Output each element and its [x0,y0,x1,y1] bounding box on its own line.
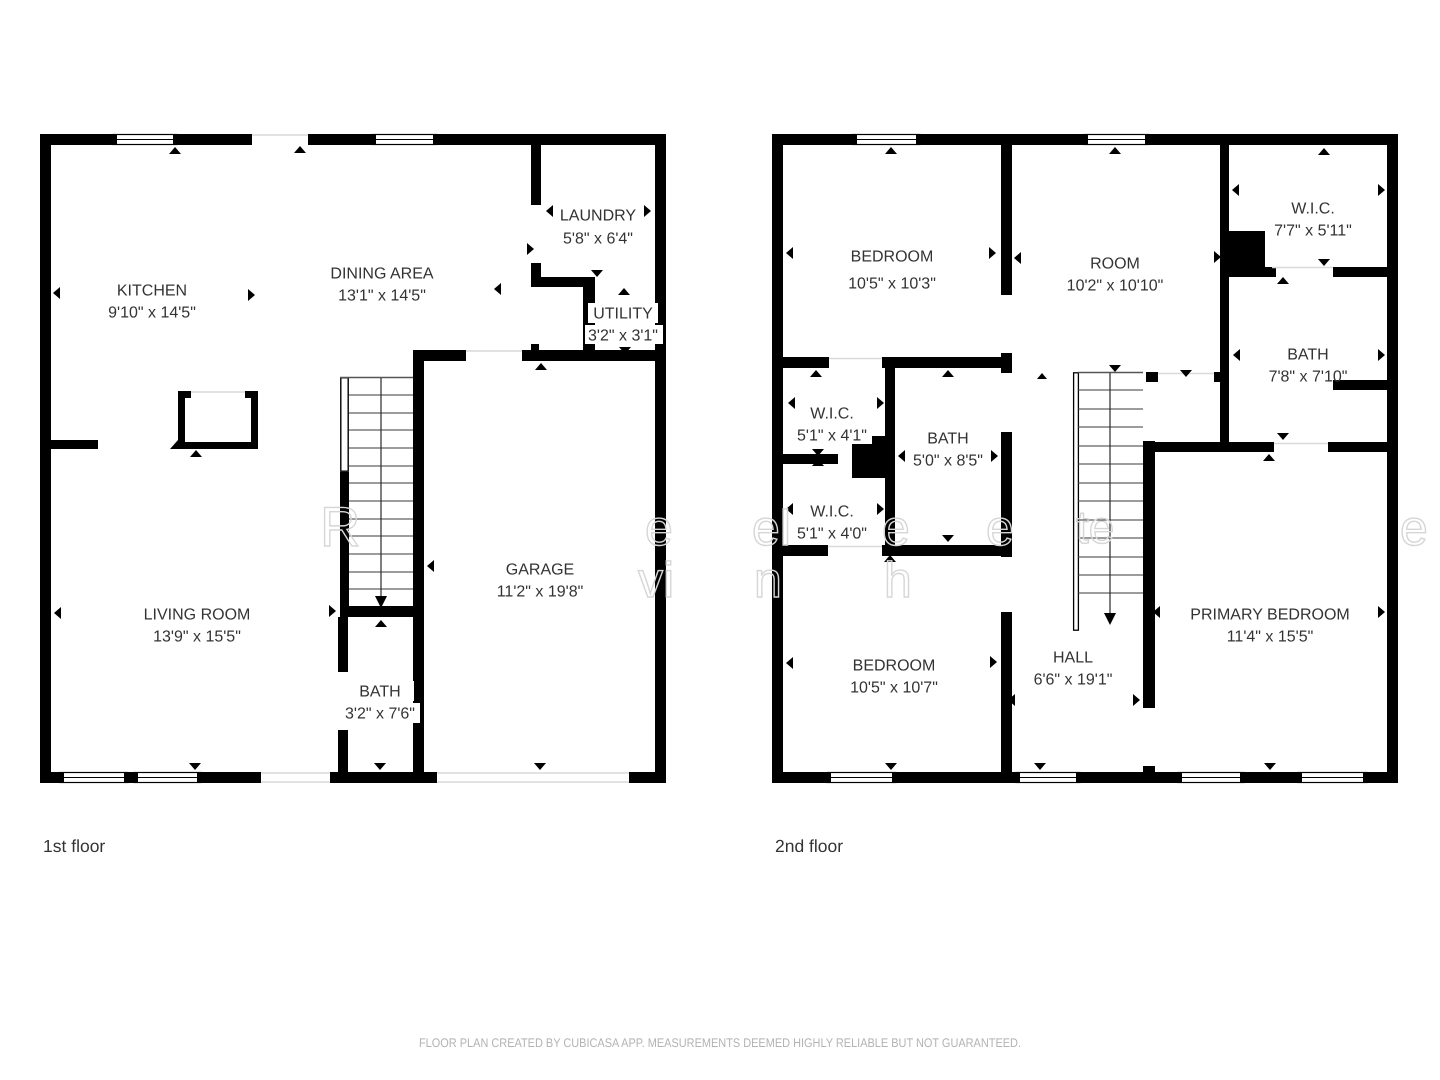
svg-text:7'8" x 7'10": 7'8" x 7'10" [1269,369,1348,386]
svg-text:5'0" x 8'5": 5'0" x 8'5" [913,453,983,470]
svg-text:9'10" x 14'5": 9'10" x 14'5" [108,305,196,322]
svg-text:10'5" x 10'7": 10'5" x 10'7" [850,680,938,697]
svg-text:W.I.C.: W.I.C. [810,504,854,521]
svg-text:ROOM: ROOM [1090,256,1140,273]
svg-text:el: el [752,500,791,556]
svg-text:e: e [1400,500,1428,556]
svg-text:UTILITY: UTILITY [593,306,653,323]
svg-text:FLOOR PLAN CREATED BY CUBICASA: FLOOR PLAN CREATED BY CUBICASA APP. MEAS… [419,1036,1021,1050]
svg-text:BEDROOM: BEDROOM [853,658,936,675]
svg-text:11'4" x 15'5": 11'4" x 15'5" [1227,629,1314,646]
svg-text:11'2" x 19'8": 11'2" x 19'8" [497,584,584,601]
svg-text:7'7" x 5'11": 7'7" x 5'11" [1274,223,1352,240]
svg-text:3'2" x 7'6": 3'2" x 7'6" [345,706,415,723]
svg-text:e: e [986,500,1014,556]
svg-text:W.I.C.: W.I.C. [810,406,854,423]
svg-text:5'1" x 4'0": 5'1" x 4'0" [797,526,867,543]
svg-text:e: e [882,500,910,556]
svg-text:2nd floor: 2nd floor [775,836,843,856]
svg-text:vi: vi [638,552,674,608]
svg-text:5'1" x 4'1": 5'1" x 4'1" [797,428,867,445]
svg-text:GARAGE: GARAGE [506,562,574,579]
svg-text:BATH: BATH [359,684,400,701]
svg-text:13'1" x 14'5": 13'1" x 14'5" [338,288,426,305]
svg-text:1st floor: 1st floor [43,836,105,856]
svg-text:BATH: BATH [927,431,968,448]
svg-text:HALL: HALL [1053,650,1093,667]
svg-text:DINING AREA: DINING AREA [330,266,433,283]
svg-text:PRIMARY BEDROOM: PRIMARY BEDROOM [1190,607,1349,624]
svg-text:BATH: BATH [1287,347,1328,364]
svg-text:W.I.C.: W.I.C. [1291,201,1335,218]
svg-text:BEDROOM: BEDROOM [851,249,934,266]
svg-text:13'9" x 15'5": 13'9" x 15'5" [153,629,241,646]
svg-text:te: te [1076,501,1114,553]
svg-text:KITCHEN: KITCHEN [117,283,187,300]
svg-text:10'5" x 10'3": 10'5" x 10'3" [848,276,936,293]
svg-text:n: n [754,552,782,608]
svg-text:LIVING ROOM: LIVING ROOM [144,607,251,624]
svg-text:R: R [320,495,360,558]
svg-text:5'8" x 6'4": 5'8" x 6'4" [563,231,633,248]
svg-text:h: h [884,552,912,608]
svg-text:10'2" x 10'10": 10'2" x 10'10" [1067,278,1164,295]
svg-text:LAUNDRY: LAUNDRY [560,208,637,225]
svg-text:e: e [645,500,673,556]
svg-text:3'2" x 3'1": 3'2" x 3'1" [588,328,658,345]
svg-text:6'6" x 19'1": 6'6" x 19'1" [1034,672,1113,689]
